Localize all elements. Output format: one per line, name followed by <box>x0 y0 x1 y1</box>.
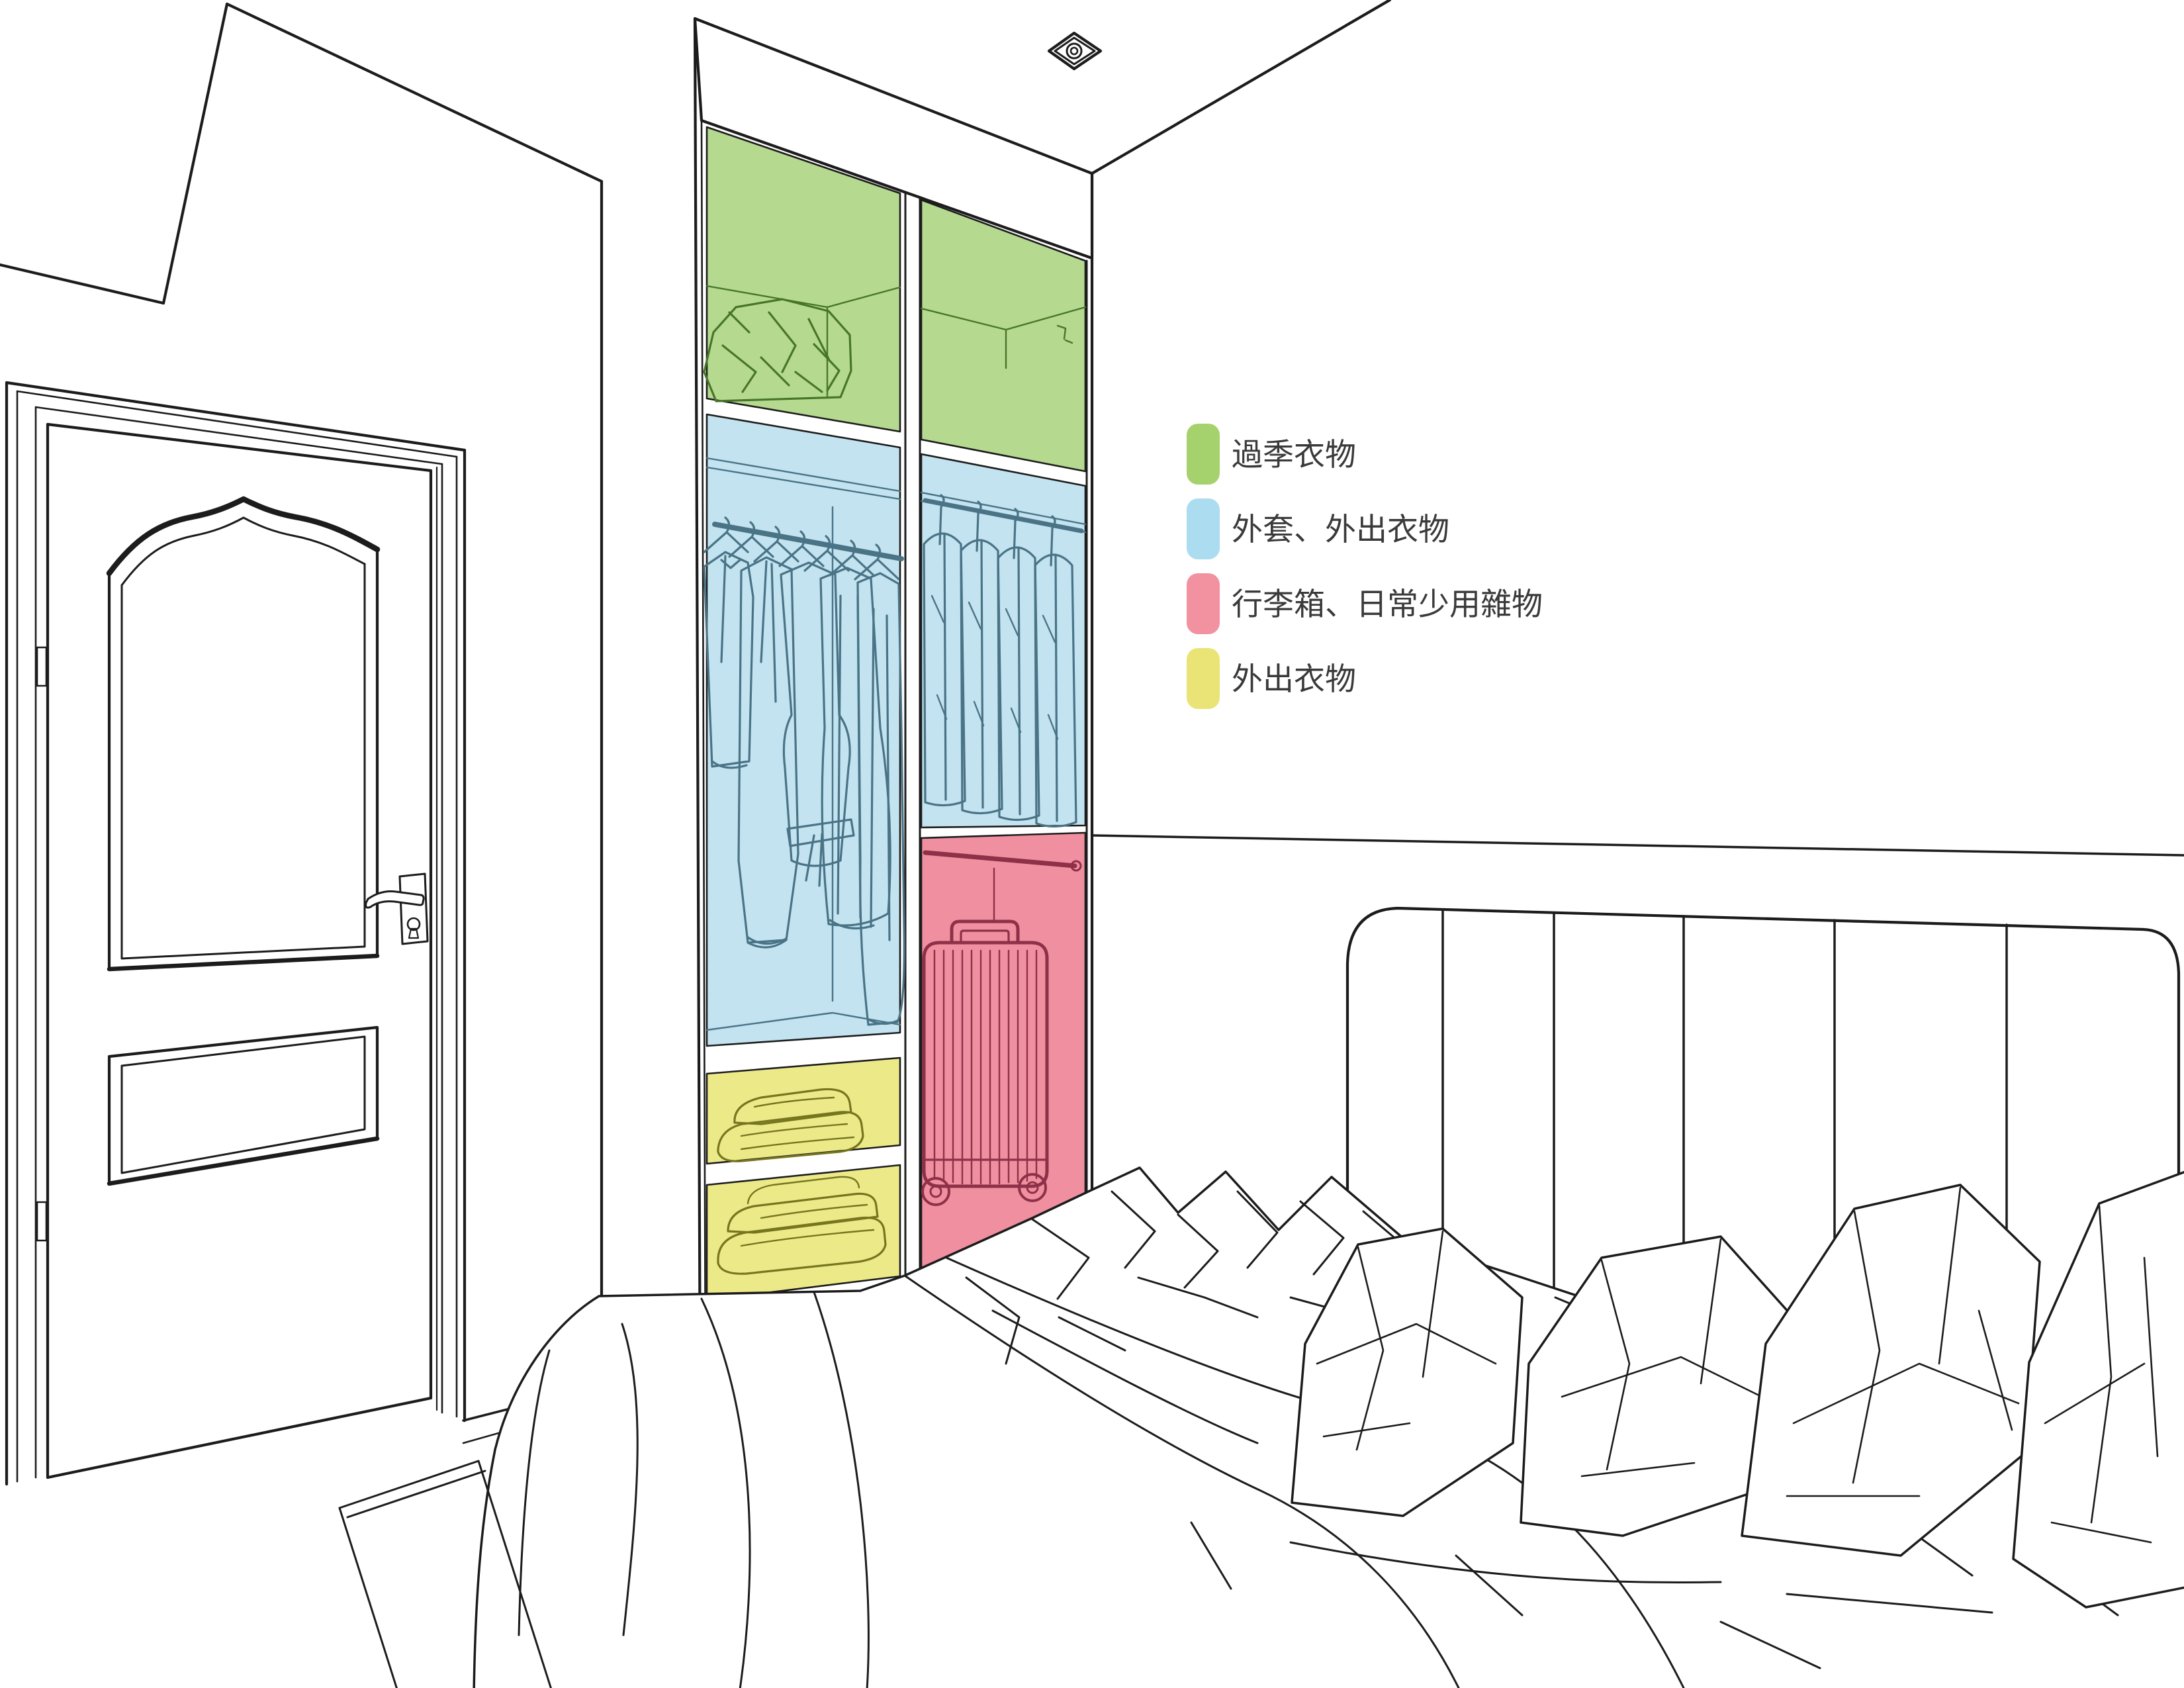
door-panel-lower <box>109 1027 377 1184</box>
wardrobe-left-inner-edge <box>702 120 705 1402</box>
frame-head-outer <box>7 383 465 450</box>
door-panel-upper <box>109 499 377 969</box>
light-lamp-ring <box>1067 44 1081 58</box>
wainscot-line <box>1092 835 2184 855</box>
panel-arch-outer <box>109 499 377 573</box>
handle-backplate <box>400 874 428 944</box>
bedroom-diagram: 過季衣物 外套、外出衣物 行李箱、日常少用雜物 外出衣物 <box>0 0 2184 1688</box>
legend-swatch-offseason <box>1187 424 1220 485</box>
legend-item: 過季衣物 <box>1187 424 1356 485</box>
panel-outer-sides <box>109 549 377 969</box>
slab-top <box>48 424 431 471</box>
legend: 過季衣物 外套、外出衣物 行李箱、日常少用雜物 外出衣物 <box>1187 424 1543 709</box>
legend-item: 外套、外出衣物 <box>1187 498 1449 559</box>
wardrobe <box>695 19 1092 1405</box>
legend-swatch-luggage <box>1187 573 1220 634</box>
legend-item: 行李箱、日常少用雜物 <box>1187 573 1543 634</box>
legend-label: 行李箱、日常少用雜物 <box>1232 586 1543 623</box>
wall-corner-edge <box>163 4 227 303</box>
legend-label: 外出衣物 <box>1232 661 1356 698</box>
ceiling-ridge-left <box>227 4 602 181</box>
lower-panel-bottom-molding <box>109 1139 377 1184</box>
pillow <box>2013 1172 2184 1607</box>
legend-swatch-outing <box>1187 648 1220 709</box>
ceiling-light <box>1049 33 1101 69</box>
slab-bottom <box>48 1398 431 1477</box>
lower-panel-inner <box>122 1037 365 1173</box>
panel-inner-sides <box>122 564 365 959</box>
legend-swatch-coats <box>1187 498 1220 559</box>
wardrobe-left-outer-edge <box>695 19 700 1405</box>
door-handle <box>366 874 428 944</box>
handle-lever <box>366 891 424 908</box>
legend-label: 過季衣物 <box>1232 437 1356 473</box>
door-slab <box>48 424 431 1477</box>
legend-label: 外套、外出衣物 <box>1232 512 1449 548</box>
zone-blue-left <box>707 414 900 1046</box>
door-hinge-top <box>37 647 46 686</box>
ceiling-corner-right <box>1092 0 1390 173</box>
legend-item: 外出衣物 <box>1187 648 1356 709</box>
zone-yellow-upper <box>707 1058 900 1164</box>
door <box>7 383 465 1484</box>
headboard-outline <box>1347 908 2179 1311</box>
left-wall-top-edge <box>0 265 163 303</box>
door-hinge-bottom <box>37 1202 46 1241</box>
light-lamp-center <box>1071 48 1077 54</box>
door-frame <box>7 383 465 1484</box>
